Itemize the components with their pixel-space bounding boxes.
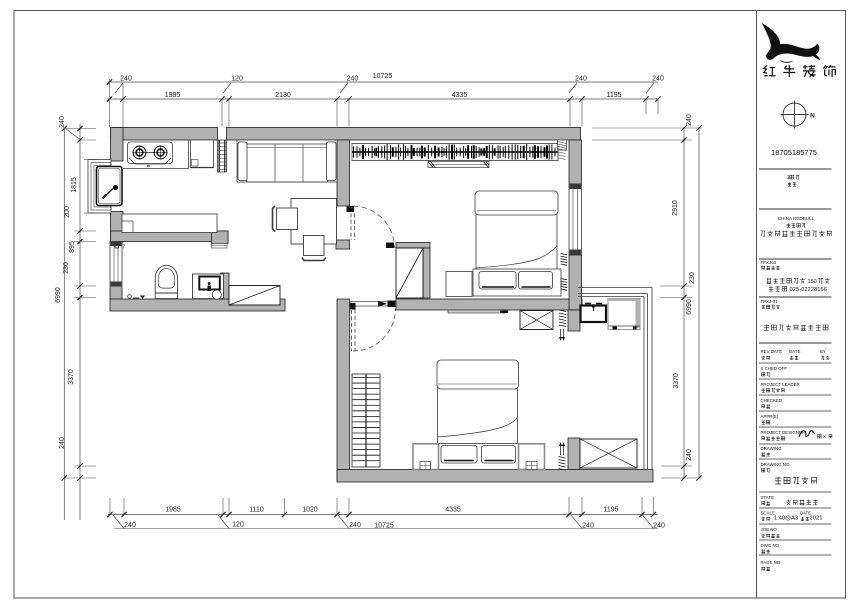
svg-text:S CHED OFF: S CHED OFF: [761, 366, 788, 371]
svg-text:240: 240: [349, 522, 361, 529]
svg-text:10725: 10725: [373, 73, 393, 80]
svg-text:240: 240: [59, 116, 66, 128]
svg-text:JOB NO: JOB NO: [761, 527, 778, 532]
svg-text:895: 895: [69, 241, 76, 253]
svg-text:240: 240: [582, 523, 594, 530]
svg-text:240: 240: [124, 522, 136, 529]
svg-text:3370: 3370: [68, 369, 75, 385]
svg-text:6990: 6990: [55, 287, 62, 303]
svg-text:2910: 2910: [672, 200, 679, 216]
svg-text:4335: 4335: [452, 92, 468, 99]
svg-text:200: 200: [64, 206, 71, 218]
svg-text:DRAWING NO: DRAWING NO: [761, 462, 790, 467]
svg-text:DATE: DATE: [789, 349, 800, 354]
svg-text:240: 240: [120, 76, 132, 83]
svg-text:1985: 1985: [165, 92, 181, 99]
svg-text:2130: 2130: [275, 92, 291, 99]
svg-text:1815: 1815: [71, 177, 78, 193]
svg-text:REV DATE: REV DATE: [761, 349, 783, 354]
svg-text:025-02228166: 025-02228166: [790, 287, 827, 293]
svg-text:240: 240: [59, 437, 66, 449]
svg-text:FPXJ03: FPXJ03: [761, 260, 777, 265]
svg-text:240: 240: [347, 76, 359, 83]
svg-text:6990: 6990: [686, 299, 693, 315]
svg-text:CHINA REDBULL: CHINA REDBULL: [778, 216, 815, 221]
svg-text:APPR(E): APPR(E): [761, 414, 779, 419]
svg-text:230: 230: [63, 262, 70, 274]
svg-text:7: 7: [122, 245, 125, 251]
svg-text:3370: 3370: [673, 373, 680, 389]
svg-text:1195: 1195: [603, 507, 618, 514]
svg-text:240: 240: [686, 114, 693, 126]
svg-text:X: X: [823, 434, 826, 439]
svg-text:1:40@A3: 1:40@A3: [774, 516, 798, 522]
svg-text:1985: 1985: [165, 507, 181, 514]
svg-text:1020: 1020: [302, 507, 318, 514]
svg-text:DRAWING: DRAWING: [761, 446, 783, 451]
svg-text:FPXJ-01: FPXJ-01: [761, 299, 779, 304]
svg-text:PROJECT LEADER: PROJECT LEADER: [761, 382, 800, 387]
svg-text:BY: BY: [820, 349, 826, 354]
svg-text:240: 240: [686, 449, 693, 461]
svg-text:1.: 1.: [787, 175, 791, 181]
svg-text:N: N: [810, 113, 815, 120]
svg-text:2021: 2021: [810, 516, 823, 522]
svg-text:DWG NO: DWG NO: [761, 543, 780, 548]
svg-text:10725: 10725: [374, 523, 394, 530]
svg-text:PAGE NO: PAGE NO: [761, 560, 781, 565]
svg-text:STATE: STATE: [761, 495, 775, 500]
svg-text:240: 240: [575, 76, 587, 83]
svg-text:1110: 1110: [249, 507, 264, 514]
svg-text:240: 240: [652, 76, 664, 83]
svg-text:18705185775: 18705185775: [771, 148, 817, 157]
svg-text:4335: 4335: [445, 507, 461, 514]
svg-text:150: 150: [808, 279, 817, 285]
svg-text:SCALE: SCALE: [761, 511, 775, 516]
svg-text:120: 120: [232, 522, 244, 529]
svg-text:PROJECT DESIGNER: PROJECT DESIGNER: [761, 430, 806, 435]
svg-text:CHECKED: CHECKED: [761, 398, 782, 403]
svg-text:120: 120: [231, 76, 243, 83]
svg-text:240: 240: [653, 523, 665, 530]
svg-text:230: 230: [689, 272, 696, 284]
svg-text:1195: 1195: [606, 92, 621, 99]
